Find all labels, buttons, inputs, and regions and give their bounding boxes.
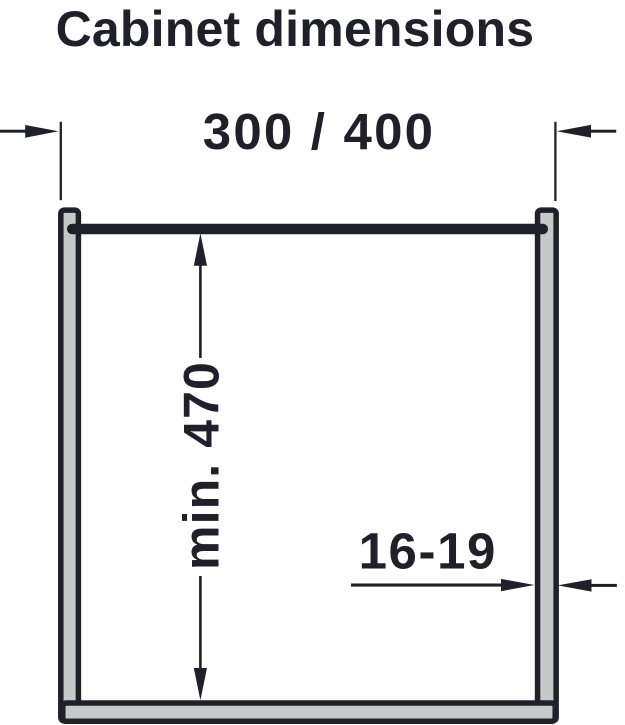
svg-text:Cabinet dimensions: Cabinet dimensions [56,1,535,57]
svg-text:300 / 400: 300 / 400 [203,103,436,160]
svg-text:min. 470: min. 470 [174,361,230,570]
svg-text:16-19: 16-19 [359,523,497,580]
